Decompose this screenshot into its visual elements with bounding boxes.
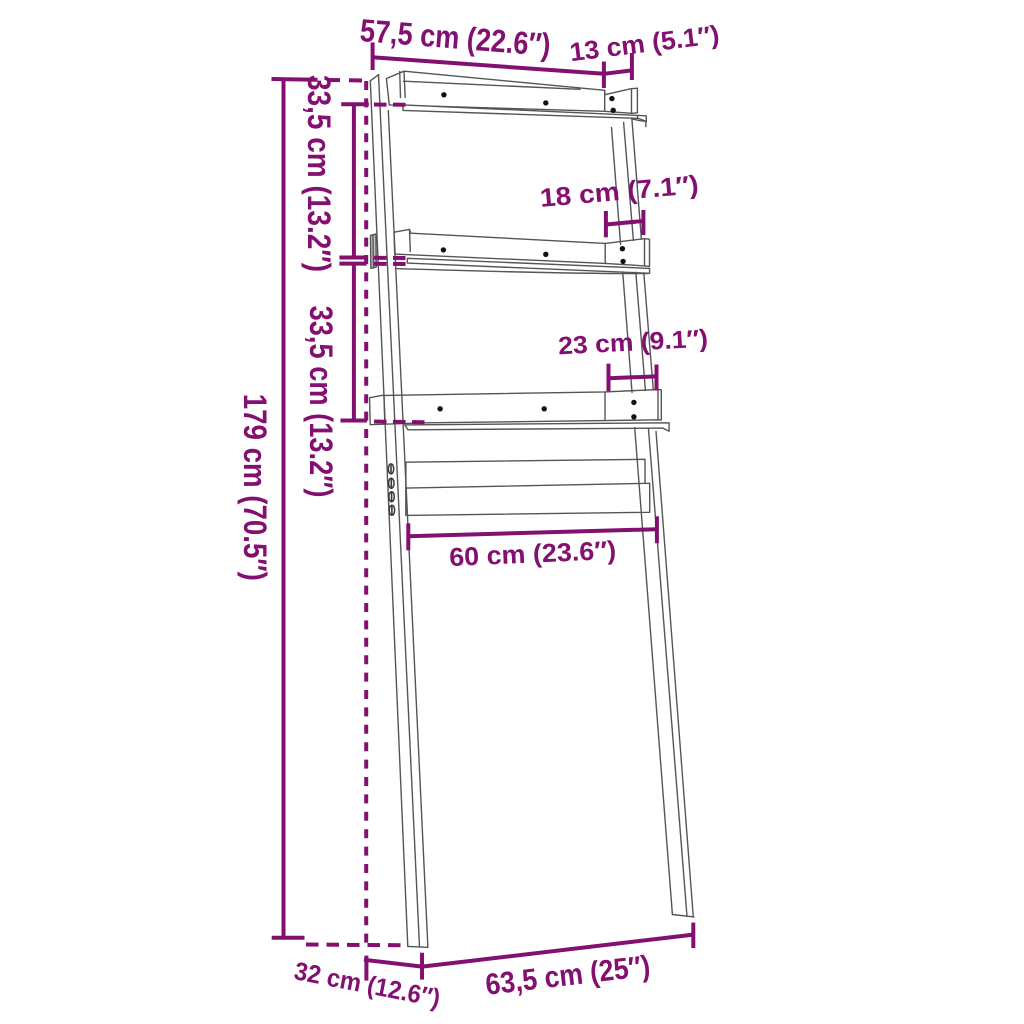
svg-text:33,5 cm (13.2″): 33,5 cm (13.2″) [302,306,338,498]
svg-text:33,5 cm (13.2″): 33,5 cm (13.2″) [301,75,336,272]
svg-text:179 cm (70.5″): 179 cm (70.5″) [237,394,272,581]
